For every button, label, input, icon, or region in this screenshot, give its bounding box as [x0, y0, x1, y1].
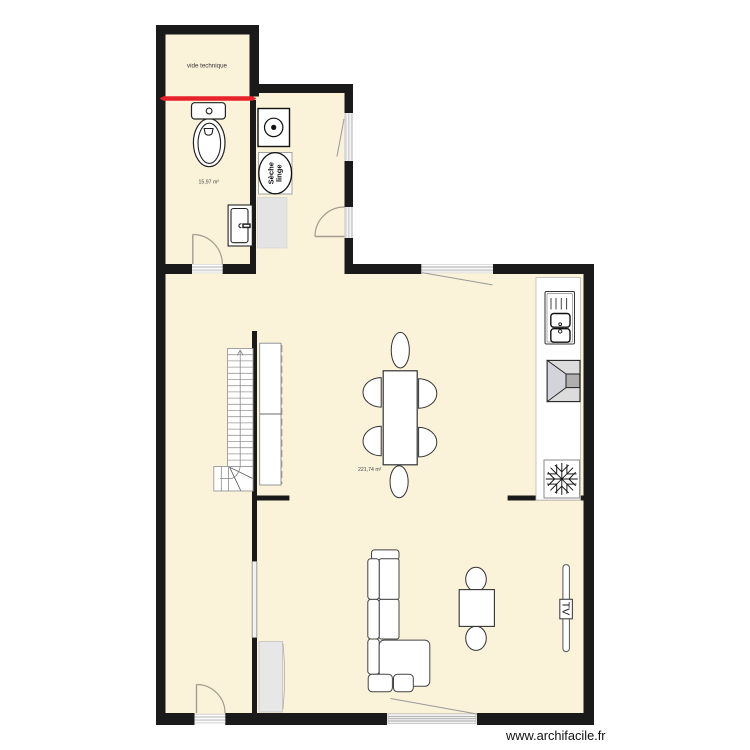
svg-text:15,97 m²: 15,97 m²: [199, 180, 220, 186]
svg-text:www.archifacile.fr: www.archifacile.fr: [505, 728, 606, 743]
svg-text:221,74 m²: 221,74 m²: [358, 467, 382, 473]
svg-text:TV: TV: [559, 602, 571, 615]
svg-text:vide technique: vide technique: [187, 63, 227, 70]
svg-text:linge: linge: [275, 164, 284, 182]
